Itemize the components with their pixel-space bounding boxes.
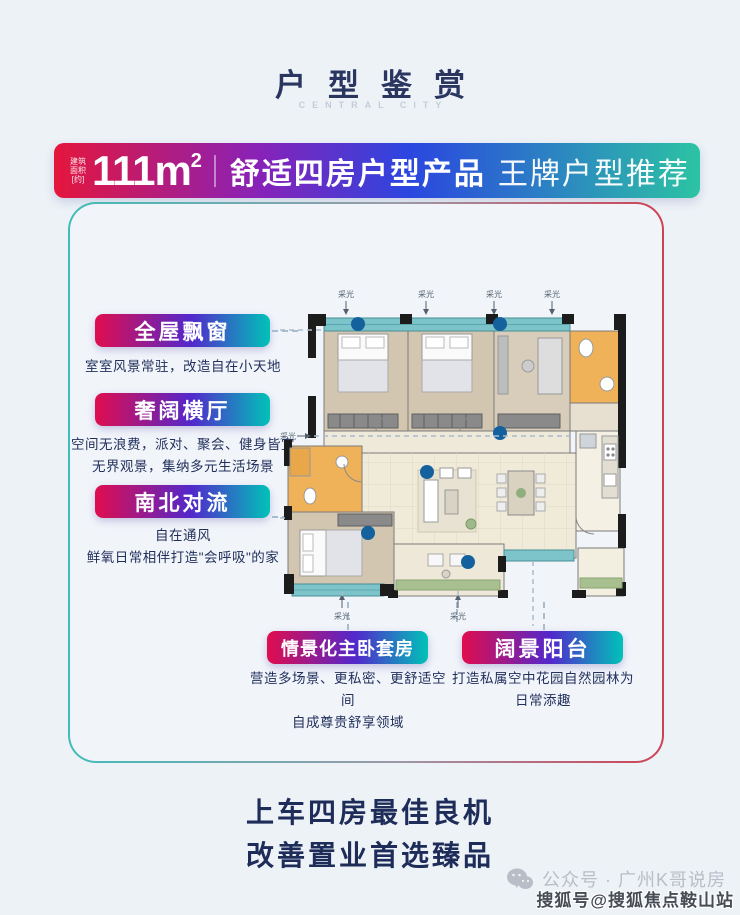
headline-banner: 建筑 面积 [约] 111m2 舒适四房户型产品 王牌户型推荐 — [54, 143, 700, 198]
sohu-watermark: 搜狐号@搜狐焦点鞍山站 — [536, 886, 734, 911]
headline-secondary: 王牌户型推荐 — [498, 149, 690, 193]
slogan-line-1: 上车四房最佳良机 — [0, 791, 740, 831]
feature-pill-master-suite: 情景化主卧套房 — [267, 631, 428, 664]
feature-pill-wide-hall: 奢阔横厅 — [95, 393, 270, 426]
desc-line: 自成尊贵舒享领域 — [248, 712, 448, 734]
feature-desc-master-suite: 营造多场景、更私密、更舒适空间 自成尊贵舒享领域 — [248, 668, 448, 734]
wechat-icon — [506, 867, 534, 891]
page-title: 户型鉴赏 — [0, 60, 740, 105]
floor-plan: 采光 采光 采光 采光 — [280, 286, 640, 626]
bathroom-top — [570, 331, 620, 403]
svg-text:采光: 采光 — [280, 431, 296, 441]
svg-text:采光: 采光 — [486, 289, 502, 299]
desc-line: 营造多场景、更私密、更舒适空间 — [248, 668, 448, 712]
desc-line: 日常添趣 — [443, 690, 643, 712]
feature-pill-airflow: 南北对流 — [95, 485, 270, 518]
svg-text:采光: 采光 — [450, 611, 466, 621]
area-value: 111m2 — [92, 150, 202, 192]
page-subtitle: CENTRAL CITY — [0, 100, 740, 110]
daylight-arrow-left: 采光 — [280, 431, 311, 441]
area-sup: 2 — [191, 150, 202, 172]
svg-text:采光: 采光 — [418, 289, 434, 299]
area-note-line: [约] — [70, 175, 86, 184]
headline-primary: 舒适四房户型产品 — [230, 149, 486, 193]
desc-line: 无界观景，集纳多元生活场景 — [60, 456, 306, 478]
banner-divider — [214, 155, 216, 187]
closet — [570, 403, 620, 431]
feature-desc-wide-hall: 空间无浪费，派对、聚会、健身皆宜 无界观景，集纳多元生活场景 — [60, 434, 306, 478]
feature-desc-balcony: 打造私属空中花园自然园林为 日常添趣 — [443, 668, 643, 712]
area-note-line: 建筑 — [70, 157, 86, 166]
dining-set — [497, 471, 545, 515]
svg-text:采光: 采光 — [334, 611, 350, 621]
feature-desc-airflow: 自在通风 鲜氧日常相伴打造"会呼吸"的家 — [60, 525, 306, 569]
area-note: 建筑 面积 [约] — [70, 157, 86, 184]
desc-line: 打造私属空中花园自然园林为 — [443, 668, 643, 690]
desc-line: 自在通风 — [60, 525, 306, 547]
feature-pill-balcony: 阔景阳台 — [462, 631, 623, 664]
area-note-line: 面积 — [70, 166, 86, 175]
desc-line: 鲜氧日常相伴打造"会呼吸"的家 — [60, 547, 306, 569]
daylight-arrows-top: 采光 采光 采光 采光 — [338, 289, 560, 315]
feature-pill-bay-windows: 全屋飘窗 — [95, 314, 270, 347]
svg-text:采光: 采光 — [544, 289, 560, 299]
poster-page: { "header": { "title": "户型鉴赏", "subtitle… — [0, 0, 740, 915]
svg-text:采光: 采光 — [338, 289, 354, 299]
desc-line: 空间无浪费，派对、聚会、健身皆宜 — [60, 434, 306, 456]
feature-desc-bay-windows: 室室风景常驻，改造自在小天地 — [72, 356, 294, 378]
daylight-arrows-bottom: 采光 采光 — [334, 594, 466, 621]
